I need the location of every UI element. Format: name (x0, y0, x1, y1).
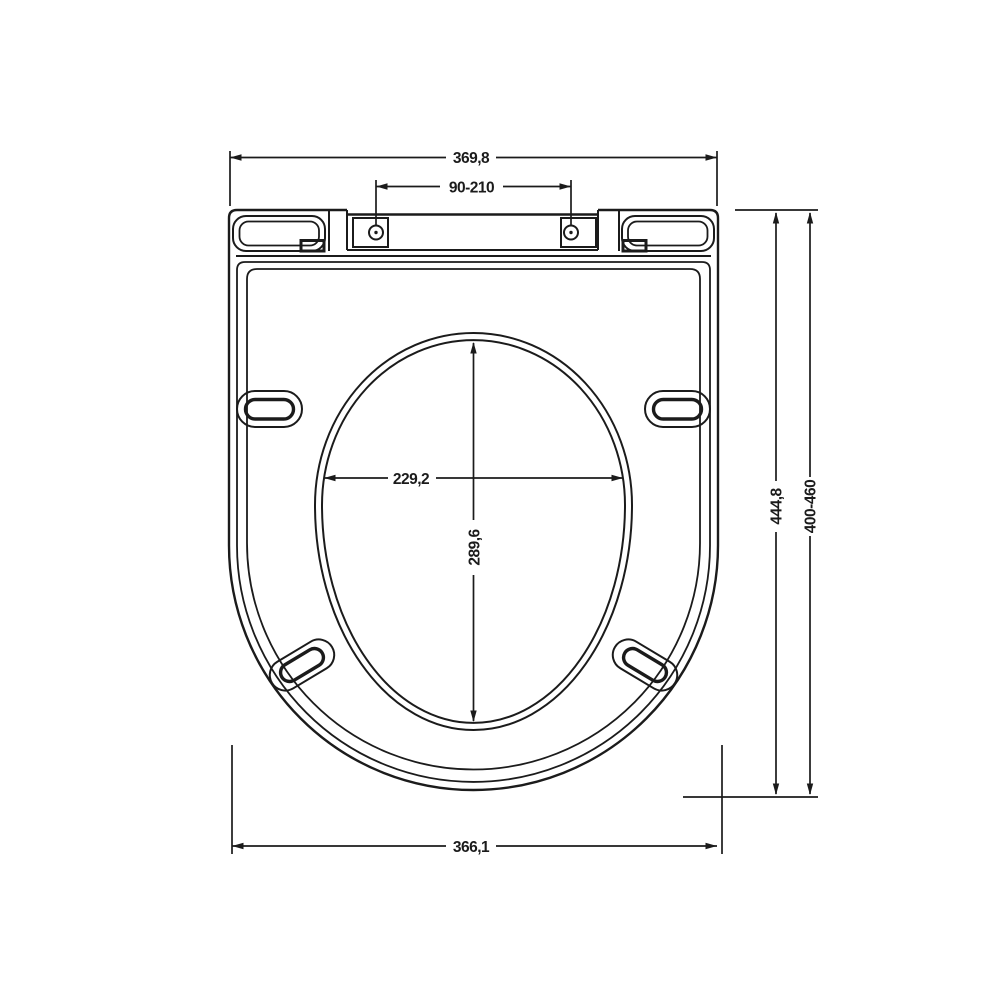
dimension-bottom-width: 366,1 (232, 745, 722, 856)
arrowhead-left (324, 475, 336, 481)
bottom-left-bumper (264, 634, 340, 697)
arrowhead-left (230, 154, 242, 160)
arrowhead-down (470, 711, 476, 723)
arrowhead-up (807, 212, 813, 224)
arrowhead-left (376, 183, 388, 189)
dimension-top-width: 369,8 (230, 150, 717, 206)
arrowhead-right (706, 843, 718, 849)
dim-label-bottom-width: 366,1 (453, 839, 490, 856)
dimension-opening: 229,2 289,6 (324, 342, 623, 722)
bottom-left-bumper-outer (264, 634, 340, 697)
left-hinge-hole-center (374, 231, 377, 234)
bottom-left-bumper-inner (277, 645, 327, 685)
dimension-hinge-spacing: 90-210 (376, 180, 571, 226)
right-hinge-hole-center (569, 231, 572, 234)
arrowhead-up (773, 212, 779, 224)
dim-label-top-width: 369,8 (453, 150, 490, 167)
dim-label-opening-width: 229,2 (393, 471, 429, 488)
arrowhead-right (560, 183, 572, 189)
arrowhead-right (612, 475, 624, 481)
toilet-seat-dimension-drawing: 369,8 90-210 444,8 400-460 229,2 (0, 0, 1000, 1000)
hinge-assembly (233, 216, 714, 251)
arrowhead-up (470, 342, 476, 354)
dim-label-opening-length: 289,6 (467, 528, 484, 565)
arrowhead-down (807, 784, 813, 796)
dim-label-overall-length: 444,8 (769, 487, 786, 524)
arrowhead-down (773, 784, 779, 796)
arrowhead-left (232, 843, 244, 849)
bottom-right-bumper (607, 634, 683, 697)
right-side-bumper-inner (654, 400, 702, 420)
bottom-right-bumper-outer (607, 634, 683, 697)
left-side-bumper-inner (246, 400, 294, 420)
dimension-overall-length: 444,8 400-460 (683, 210, 820, 797)
dim-label-hinge-spacing: 90-210 (449, 180, 494, 197)
bottom-right-bumper-inner (620, 645, 670, 685)
dim-label-mounting-range: 400-460 (803, 480, 820, 533)
arrowhead-right (706, 154, 718, 160)
drawing-canvas: 369,8 90-210 444,8 400-460 229,2 (0, 0, 1000, 1000)
